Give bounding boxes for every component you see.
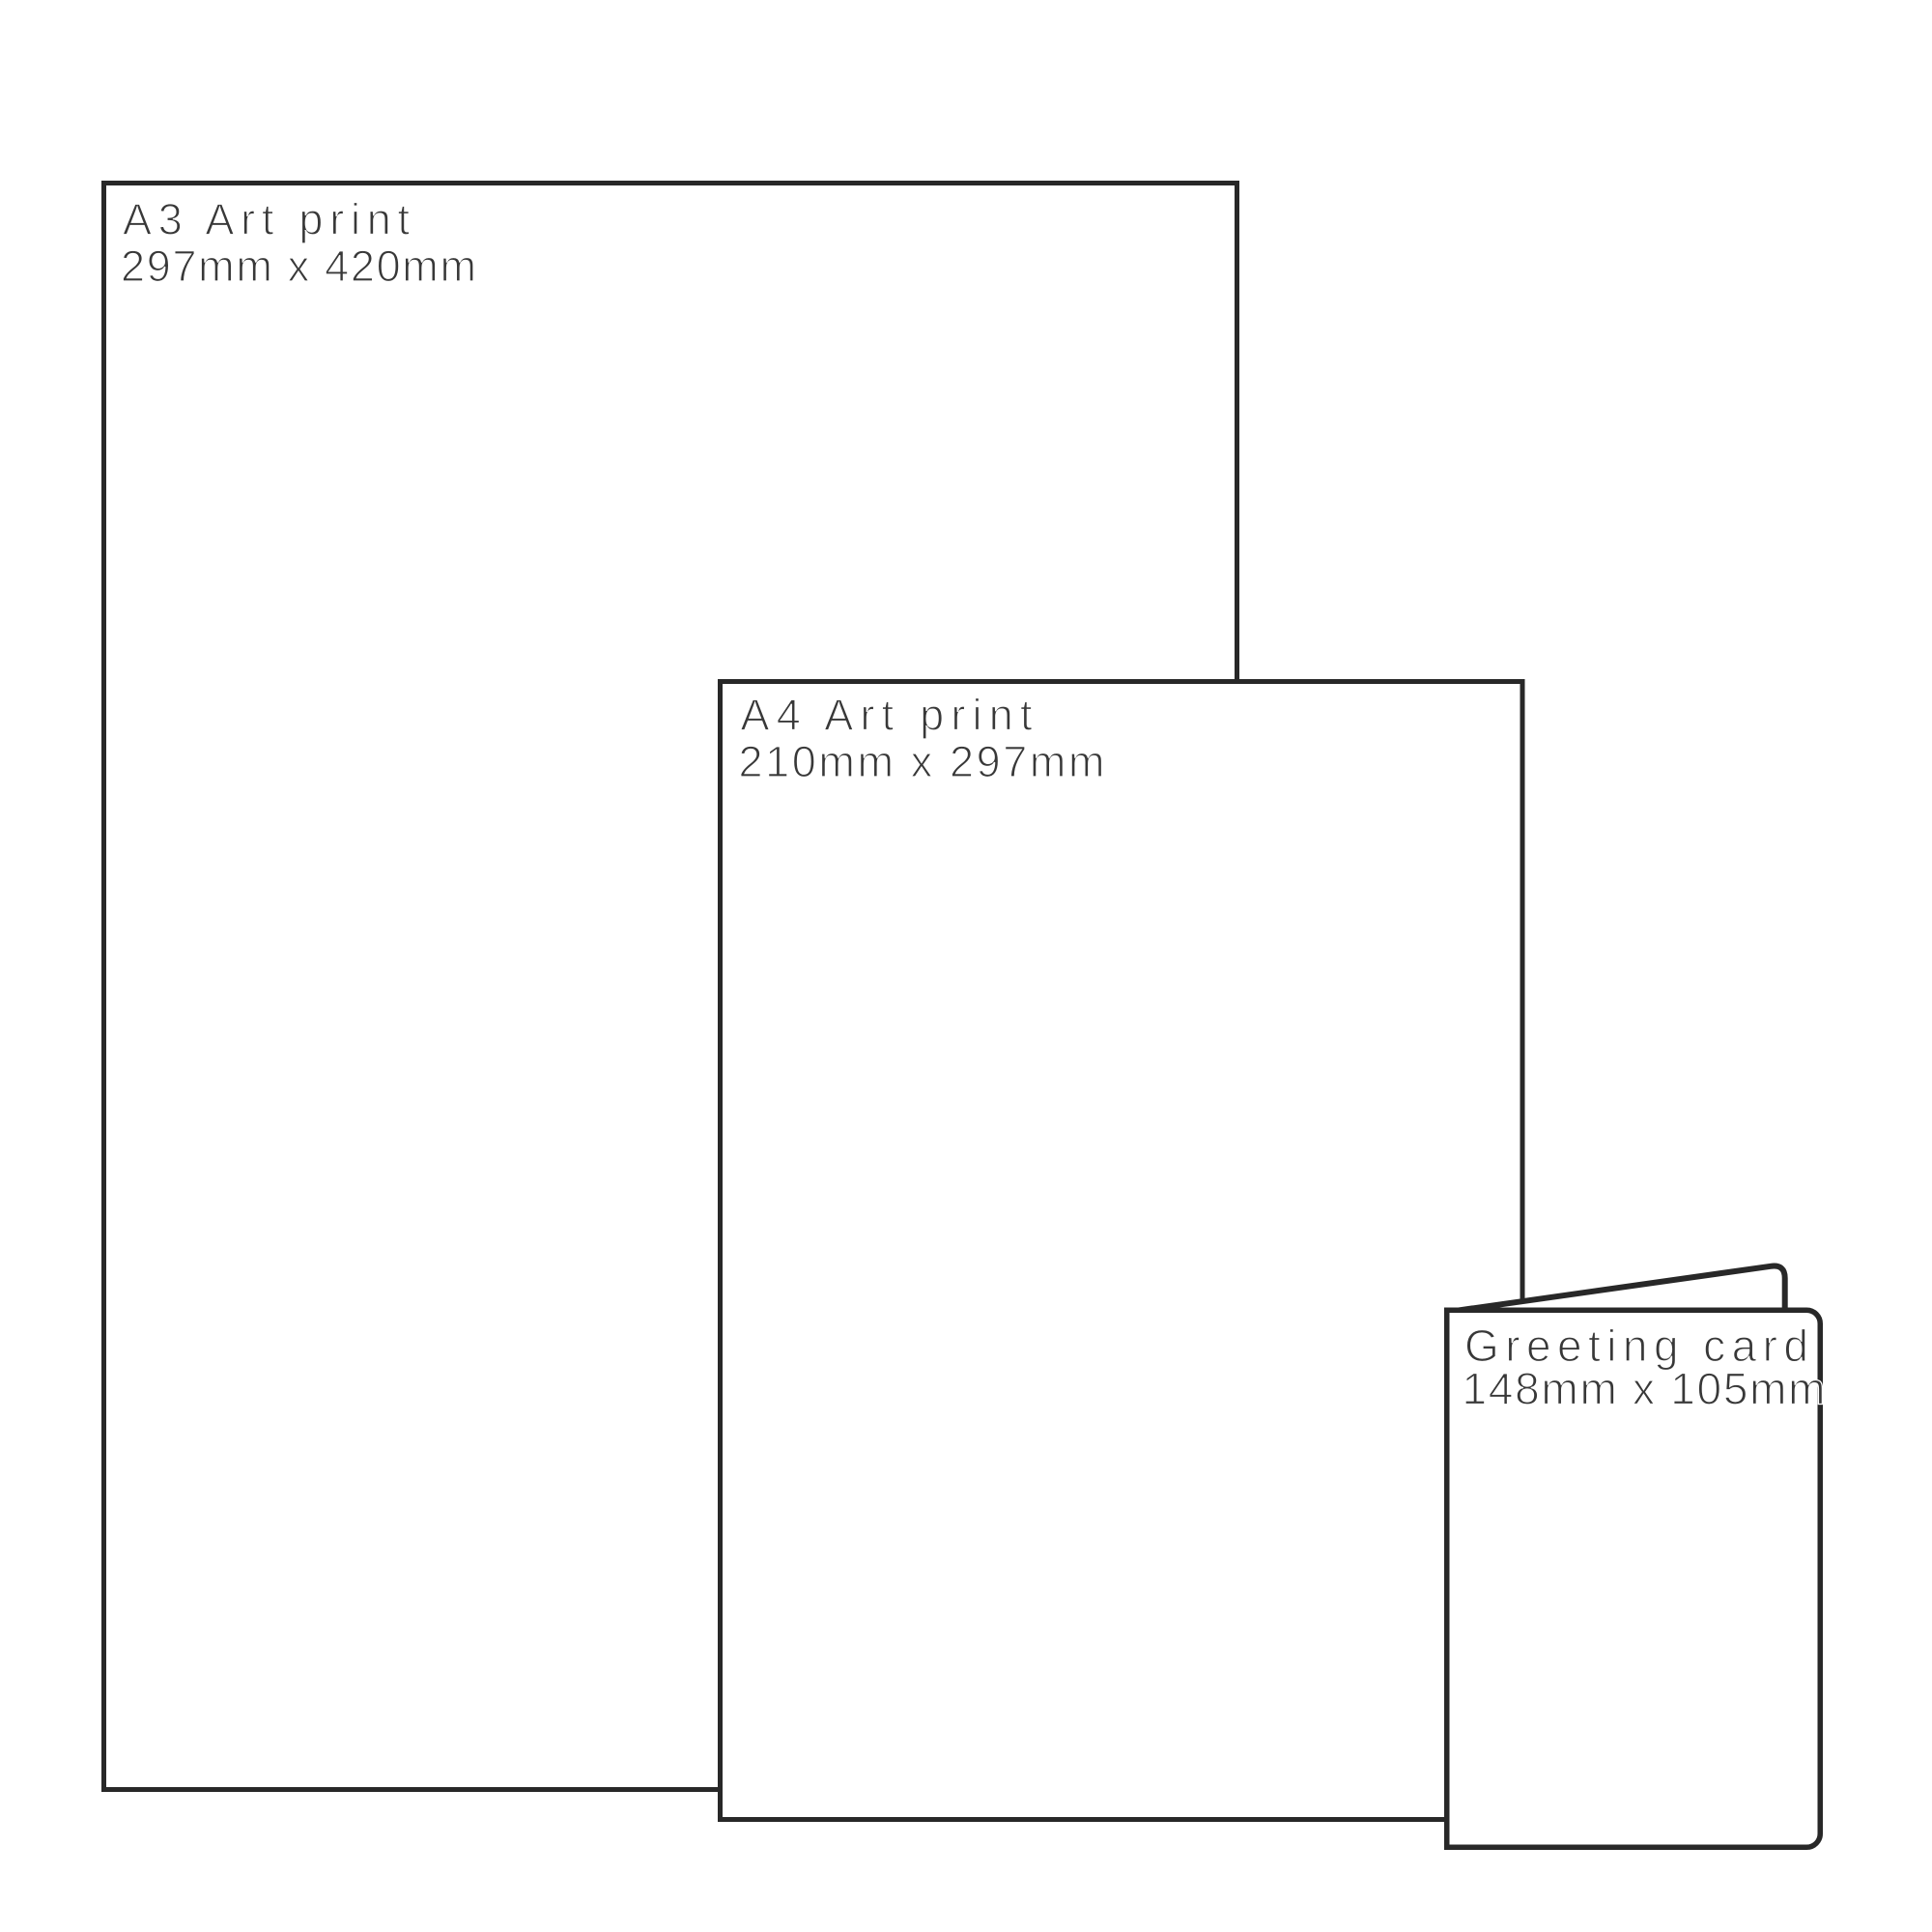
svg-text:297mm x 420mm: 297mm x 420mm bbox=[121, 241, 476, 291]
svg-text:210mm x 297mm: 210mm x 297mm bbox=[739, 737, 1105, 786]
svg-text:A4 Art print: A4 Art print bbox=[741, 691, 1033, 740]
svg-text:148mm x 105mm: 148mm x 105mm bbox=[1463, 1364, 1826, 1414]
svg-text:A3 Art print: A3 Art print bbox=[123, 195, 410, 244]
